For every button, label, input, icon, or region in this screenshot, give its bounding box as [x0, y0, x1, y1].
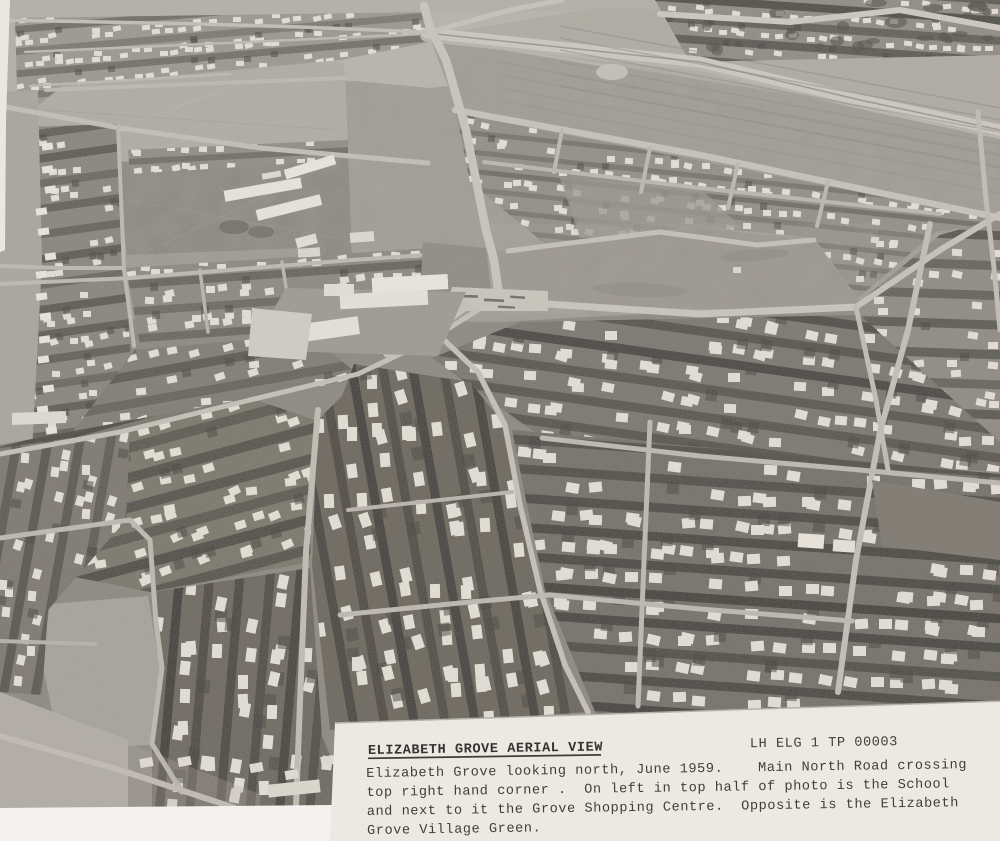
svg-text:LH ELG 1 TP 00003: LH ELG 1 TP 00003 [750, 735, 898, 752]
svg-text:Grove Village Green.: Grove Village Green. [367, 821, 541, 839]
